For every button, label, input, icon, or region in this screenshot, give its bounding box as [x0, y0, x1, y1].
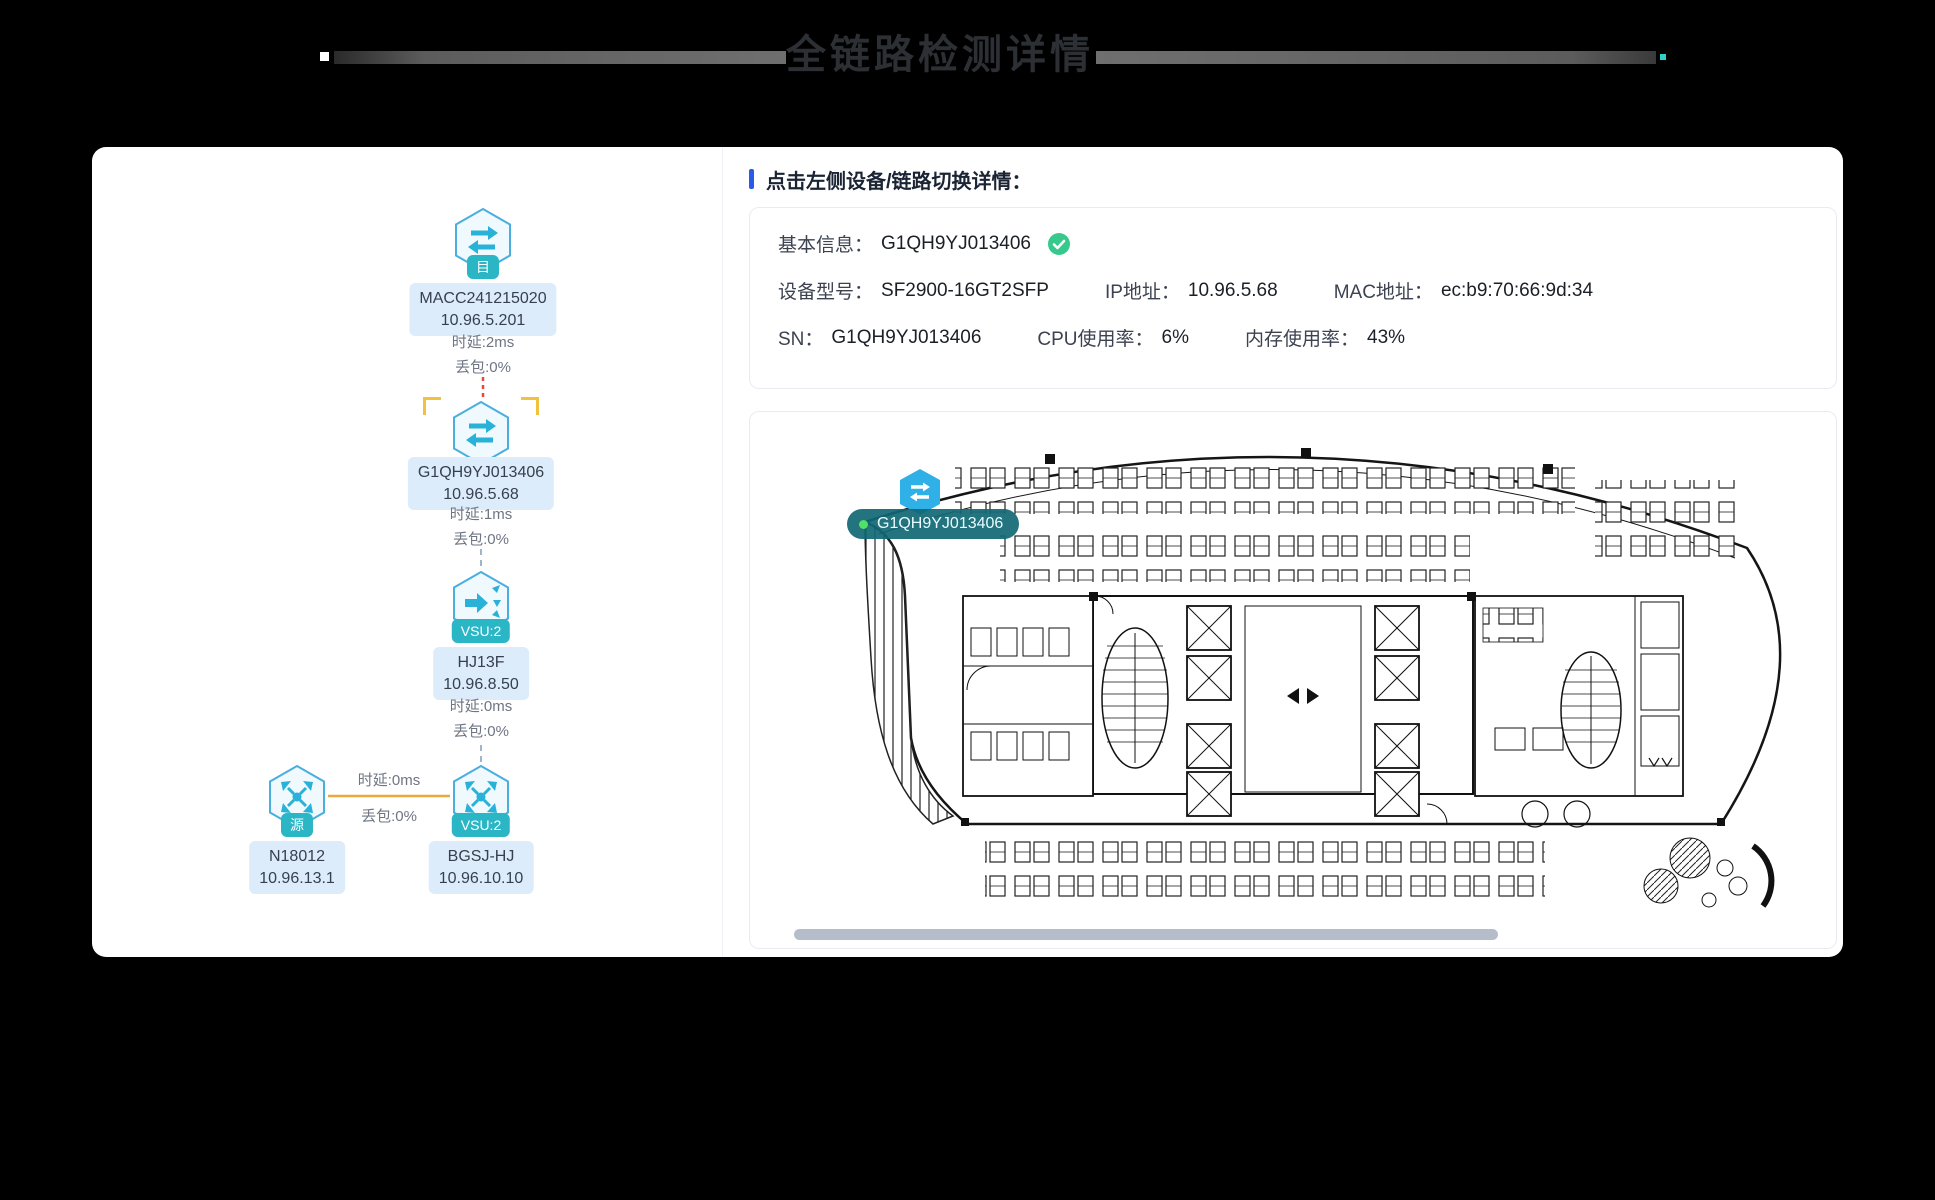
info-pair: 内存使用率： 43% — [1245, 324, 1405, 351]
info-row-3: SN： G1QH9YJ013406 CPU使用率： 6% 内存使用率： 43% — [778, 324, 1808, 351]
destination-badge: 目 — [467, 255, 499, 279]
latency-text: 时延:2ms — [452, 331, 515, 356]
floorplan-horizontal-scrollbar[interactable] — [794, 929, 1498, 940]
basic-info-card: 基本信息： G1QH9YJ013406 设备型号： SF2900-16GT2SF… — [749, 207, 1837, 389]
node-ip: 10.96.13.1 — [259, 868, 335, 890]
basic-info-label: 基本信息： — [778, 230, 873, 257]
node-name: N18012 — [259, 846, 335, 868]
switch-icon — [452, 401, 510, 465]
title-right-cap — [1660, 54, 1666, 60]
source-badge: 源 — [281, 813, 313, 837]
topology-links — [92, 147, 722, 957]
field-value: 10.96.5.68 — [1188, 280, 1278, 302]
detail-pane: 点击左侧设备/链路切换详情： 基本信息： G1QH9YJ013406 — [722, 147, 1845, 957]
marker-device-name: G1QH9YJ013406 — [877, 515, 1003, 533]
vsu-badge: VSU:2 — [452, 813, 510, 837]
field-value: SF2900-16GT2SFP — [881, 280, 1049, 302]
latency-text: 时延:1ms — [450, 503, 513, 528]
detail-header: 点击左侧设备/链路切换详情： — [749, 167, 1837, 191]
node-label: BGSJ-HJ 10.96.10.10 — [429, 841, 534, 894]
header-accent-bar — [749, 169, 754, 189]
node-name: MACC241215020 — [419, 288, 546, 310]
page-title: 全链路检测详情 — [786, 22, 1094, 80]
latency-text: 时延:0ms — [450, 695, 513, 720]
info-pair: MAC地址： ec:b9:70:66:9d:34 — [1334, 277, 1593, 304]
device-marker-label[interactable]: G1QH9YJ013406 — [847, 509, 1019, 539]
node-stats: 时延:0ms 丢包:0% — [450, 695, 513, 745]
node-label: N18012 10.96.13.1 — [249, 841, 345, 894]
title-left-rule — [334, 51, 786, 64]
basic-info-value: G1QH9YJ013406 — [881, 233, 1031, 255]
field-value: ec:b9:70:66:9d:34 — [1441, 280, 1593, 302]
field-value: G1QH9YJ013406 — [831, 327, 981, 349]
bottom-link-loss: 丢包:0% — [361, 805, 417, 826]
header-text: 点击左侧设备/链路切换详情： — [766, 165, 1032, 194]
node-name: G1QH9YJ013406 — [418, 462, 544, 484]
page-background: 全链路检测详情 目 — [0, 0, 1935, 1200]
node-ip: 10.96.8.50 — [443, 674, 519, 696]
loss-text: 丢包:0% — [450, 528, 513, 553]
info-pair: SN： G1QH9YJ013406 — [778, 324, 981, 351]
info-pair: IP地址： 10.96.5.68 — [1105, 277, 1278, 304]
field-label: SN： — [778, 324, 823, 351]
node-name: BGSJ-HJ — [439, 846, 524, 868]
floorplan-card: G1QH9YJ013406 — [749, 411, 1837, 949]
field-value: 43% — [1367, 327, 1405, 349]
field-label: 设备型号： — [778, 277, 873, 304]
info-row-2: 设备型号： SF2900-16GT2SFP IP地址： 10.96.5.68 M… — [778, 277, 1808, 304]
info-row-basic: 基本信息： G1QH9YJ013406 — [778, 230, 1808, 257]
loss-text: 丢包:0% — [452, 356, 515, 381]
node-ip: 10.96.10.10 — [439, 868, 524, 890]
floorplan-drawing — [835, 428, 1820, 918]
bottom-link-latency: 时延:0ms — [358, 769, 421, 790]
node-stats: 时延:1ms 丢包:0% — [450, 503, 513, 553]
node-stats: 时延:2ms 丢包:0% — [452, 331, 515, 381]
status-ok-icon — [1047, 232, 1071, 256]
main-panel: 目 MACC241215020 10.96.5.201 时延:2ms 丢包:0% — [92, 147, 1843, 957]
field-label: 内存使用率： — [1245, 324, 1359, 351]
field-label: MAC地址： — [1334, 277, 1433, 304]
node-label: MACC241215020 10.96.5.201 — [409, 283, 556, 336]
node-ip: 10.96.5.68 — [418, 484, 544, 506]
vsu-badge: VSU:2 — [452, 619, 510, 643]
field-label: CPU使用率： — [1037, 324, 1153, 351]
loss-text: 丢包:0% — [450, 720, 513, 745]
title-left-cap — [320, 52, 329, 61]
field-value: 6% — [1162, 327, 1189, 349]
node-label: HJ13F 10.96.8.50 — [433, 647, 529, 700]
node-ip: 10.96.5.201 — [419, 310, 546, 332]
online-status-dot — [859, 520, 868, 529]
title-bar: 全链路检测详情 — [0, 0, 1935, 110]
node-name: HJ13F — [443, 652, 519, 674]
field-label: IP地址： — [1105, 277, 1180, 304]
title-right-rule — [1096, 51, 1656, 64]
topology-pane: 目 MACC241215020 10.96.5.201 时延:2ms 丢包:0% — [92, 147, 722, 957]
info-pair: CPU使用率： 6% — [1037, 324, 1189, 351]
info-pair: 设备型号： SF2900-16GT2SFP — [778, 277, 1049, 304]
